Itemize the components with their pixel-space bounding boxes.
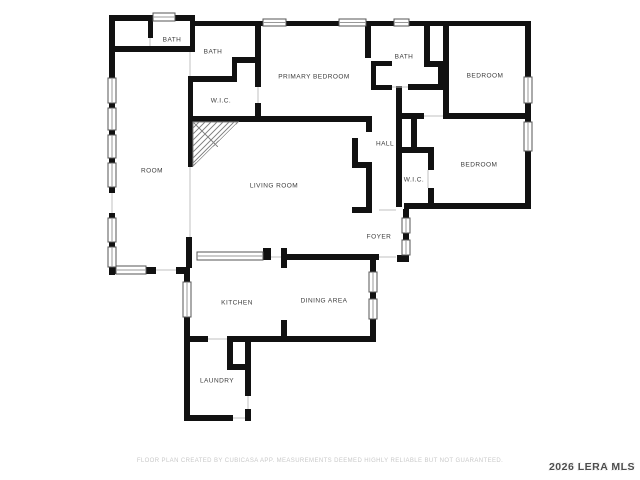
- room-label-laundry: LAUNDRY: [200, 378, 234, 385]
- window-icon: [108, 247, 116, 267]
- room-label-bedroom-top-right: BEDROOM: [467, 73, 504, 80]
- window-icon: [153, 13, 175, 21]
- openings-layer: [112, 38, 443, 418]
- window-icon: [108, 78, 116, 103]
- floor-plan-page: BATH BATH PRIMARY BEDROOM BATH BEDROOM W…: [0, 0, 640, 480]
- window-icon: [339, 19, 366, 26]
- room-label-wic-right: W.I.C.: [404, 177, 424, 184]
- room-label-bath-upper-left: BATH: [163, 37, 182, 44]
- mls-watermark: 2026 LERA MLS: [549, 461, 635, 473]
- window-icon: [402, 218, 410, 233]
- room-label-wic-left: W.I.C.: [211, 98, 231, 105]
- room-label-bath-right: BATH: [395, 54, 414, 61]
- window-icon: [263, 19, 286, 26]
- window-icon: [108, 163, 116, 187]
- window-icon: [108, 108, 116, 130]
- window-icon: [108, 135, 116, 158]
- room-label-hall: HALL: [376, 141, 394, 148]
- room-label-living-room: LIVING ROOM: [250, 183, 298, 190]
- window-icon: [524, 122, 532, 151]
- window-icon: [183, 282, 191, 317]
- window-icon: [394, 19, 409, 26]
- room-label-kitchen: KITCHEN: [221, 300, 253, 307]
- stairs-icon: [193, 122, 238, 166]
- window-icon: [402, 240, 410, 255]
- room-label-primary-bedroom: PRIMARY BEDROOM: [278, 74, 350, 81]
- floor-plan-drawing: [0, 0, 640, 480]
- window-icon: [369, 299, 377, 319]
- room-label-dining-area: DINING AREA: [301, 298, 348, 305]
- window-icon: [524, 77, 532, 103]
- room-label-room: ROOM: [141, 168, 163, 175]
- room-label-foyer: FOYER: [367, 234, 392, 241]
- disclaimer-text: FLOOR PLAN CREATED BY CUBICASA APP. MEAS…: [0, 458, 640, 464]
- room-label-bath-middle: BATH: [204, 49, 223, 56]
- room-label-bedroom-right: BEDROOM: [461, 162, 498, 169]
- window-icon: [369, 272, 377, 292]
- window-icon: [116, 266, 146, 274]
- window-icon: [197, 252, 263, 260]
- window-icon: [108, 218, 116, 242]
